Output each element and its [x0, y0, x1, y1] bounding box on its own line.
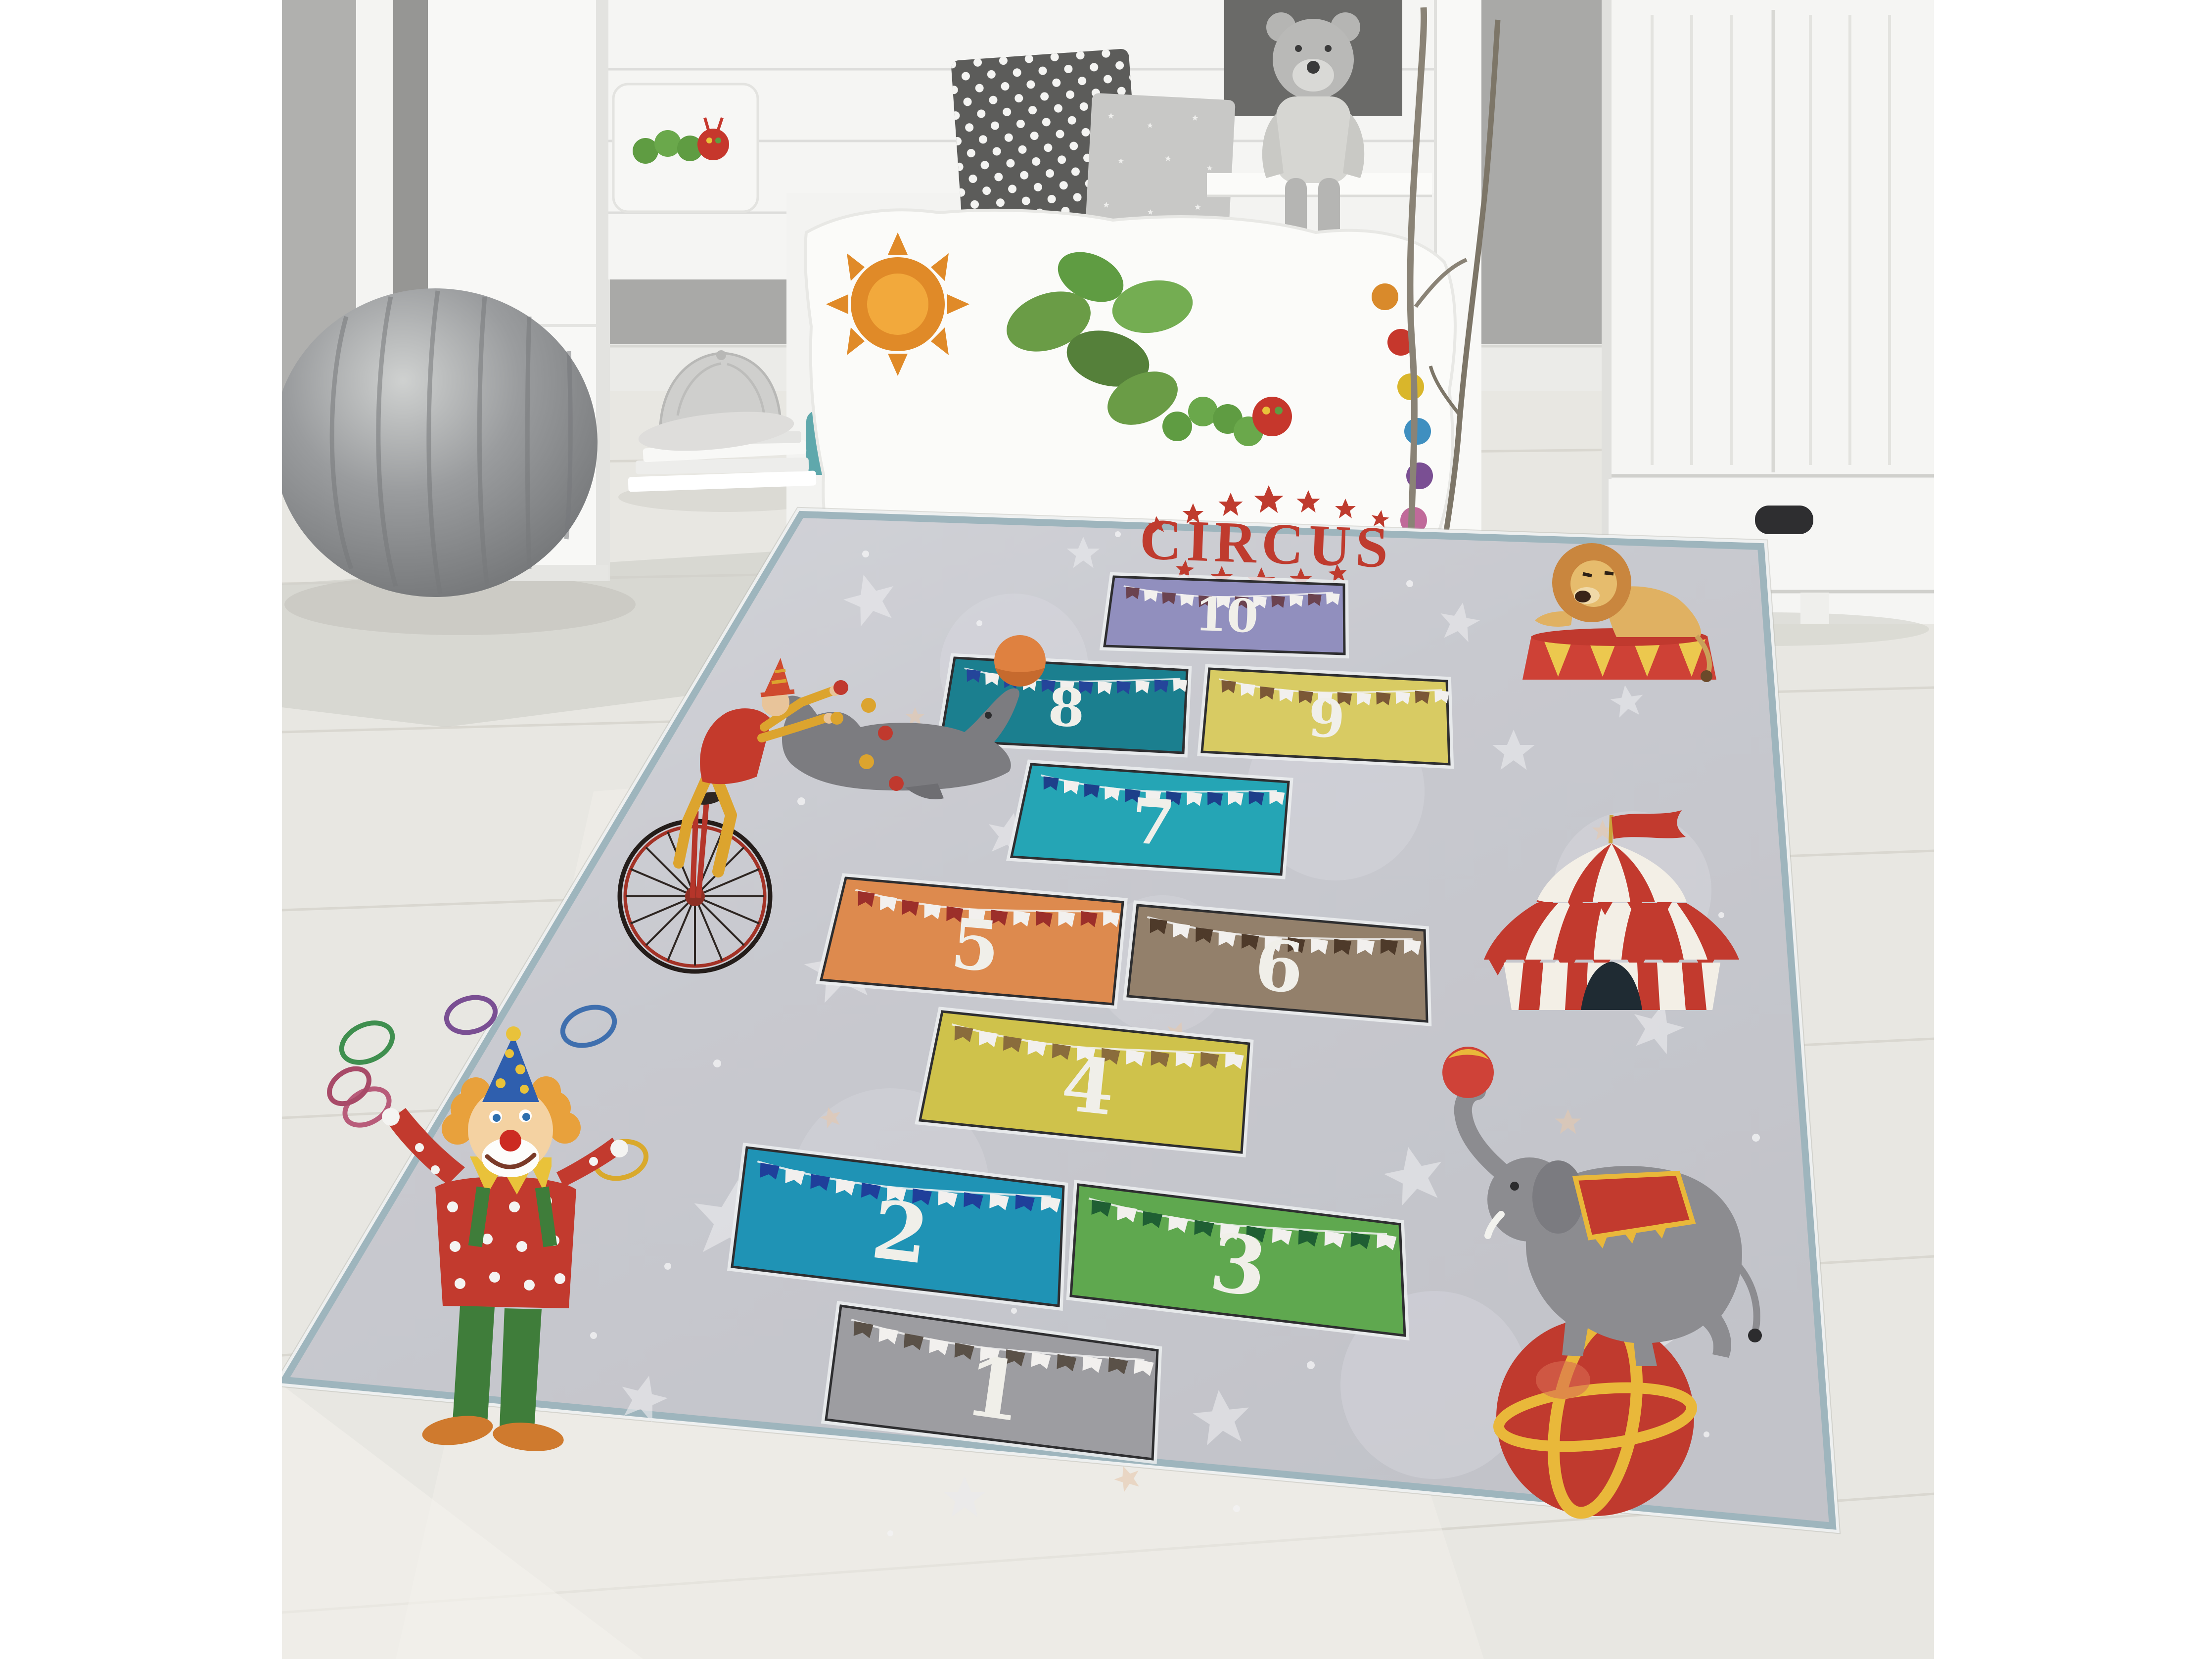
hopscotch-square-6: 6 [1128, 905, 1427, 1021]
hopscotch-square-9: 9 [1202, 669, 1449, 764]
hopscotch-square-7: 7 [1012, 764, 1289, 875]
knitted-pouf [282, 288, 598, 597]
square-number-7: 7 [1129, 784, 1177, 860]
caterpillar-pillow [613, 84, 758, 212]
square-number-8: 8 [1047, 676, 1086, 739]
square-number-10: 10 [1194, 588, 1259, 643]
scene: CIRCUS 10 8 9 7 [282, 0, 1934, 1659]
square-number-3: 3 [1205, 1215, 1272, 1315]
sun-print [826, 232, 969, 376]
rug-title-text: CIRCUS [1139, 507, 1394, 580]
circus-ball [1496, 1318, 1694, 1516]
square-number-9: 9 [1307, 687, 1346, 750]
drawer-handle [1755, 506, 1813, 534]
hopscotch-square-5: 5 [821, 878, 1123, 1004]
square-number-2: 2 [867, 1183, 933, 1283]
square-number-4: 4 [1058, 1039, 1119, 1132]
room-photo: CIRCUS 10 8 9 7 [282, 0, 1934, 1659]
square-number-5: 5 [948, 903, 1003, 988]
screenshot-canvas: { "canvas": {"width": 4472, "height": 33… [0, 0, 2212, 1659]
hopscotch-square-10: 10 [1105, 577, 1344, 654]
square-number-6: 6 [1251, 924, 1306, 1010]
